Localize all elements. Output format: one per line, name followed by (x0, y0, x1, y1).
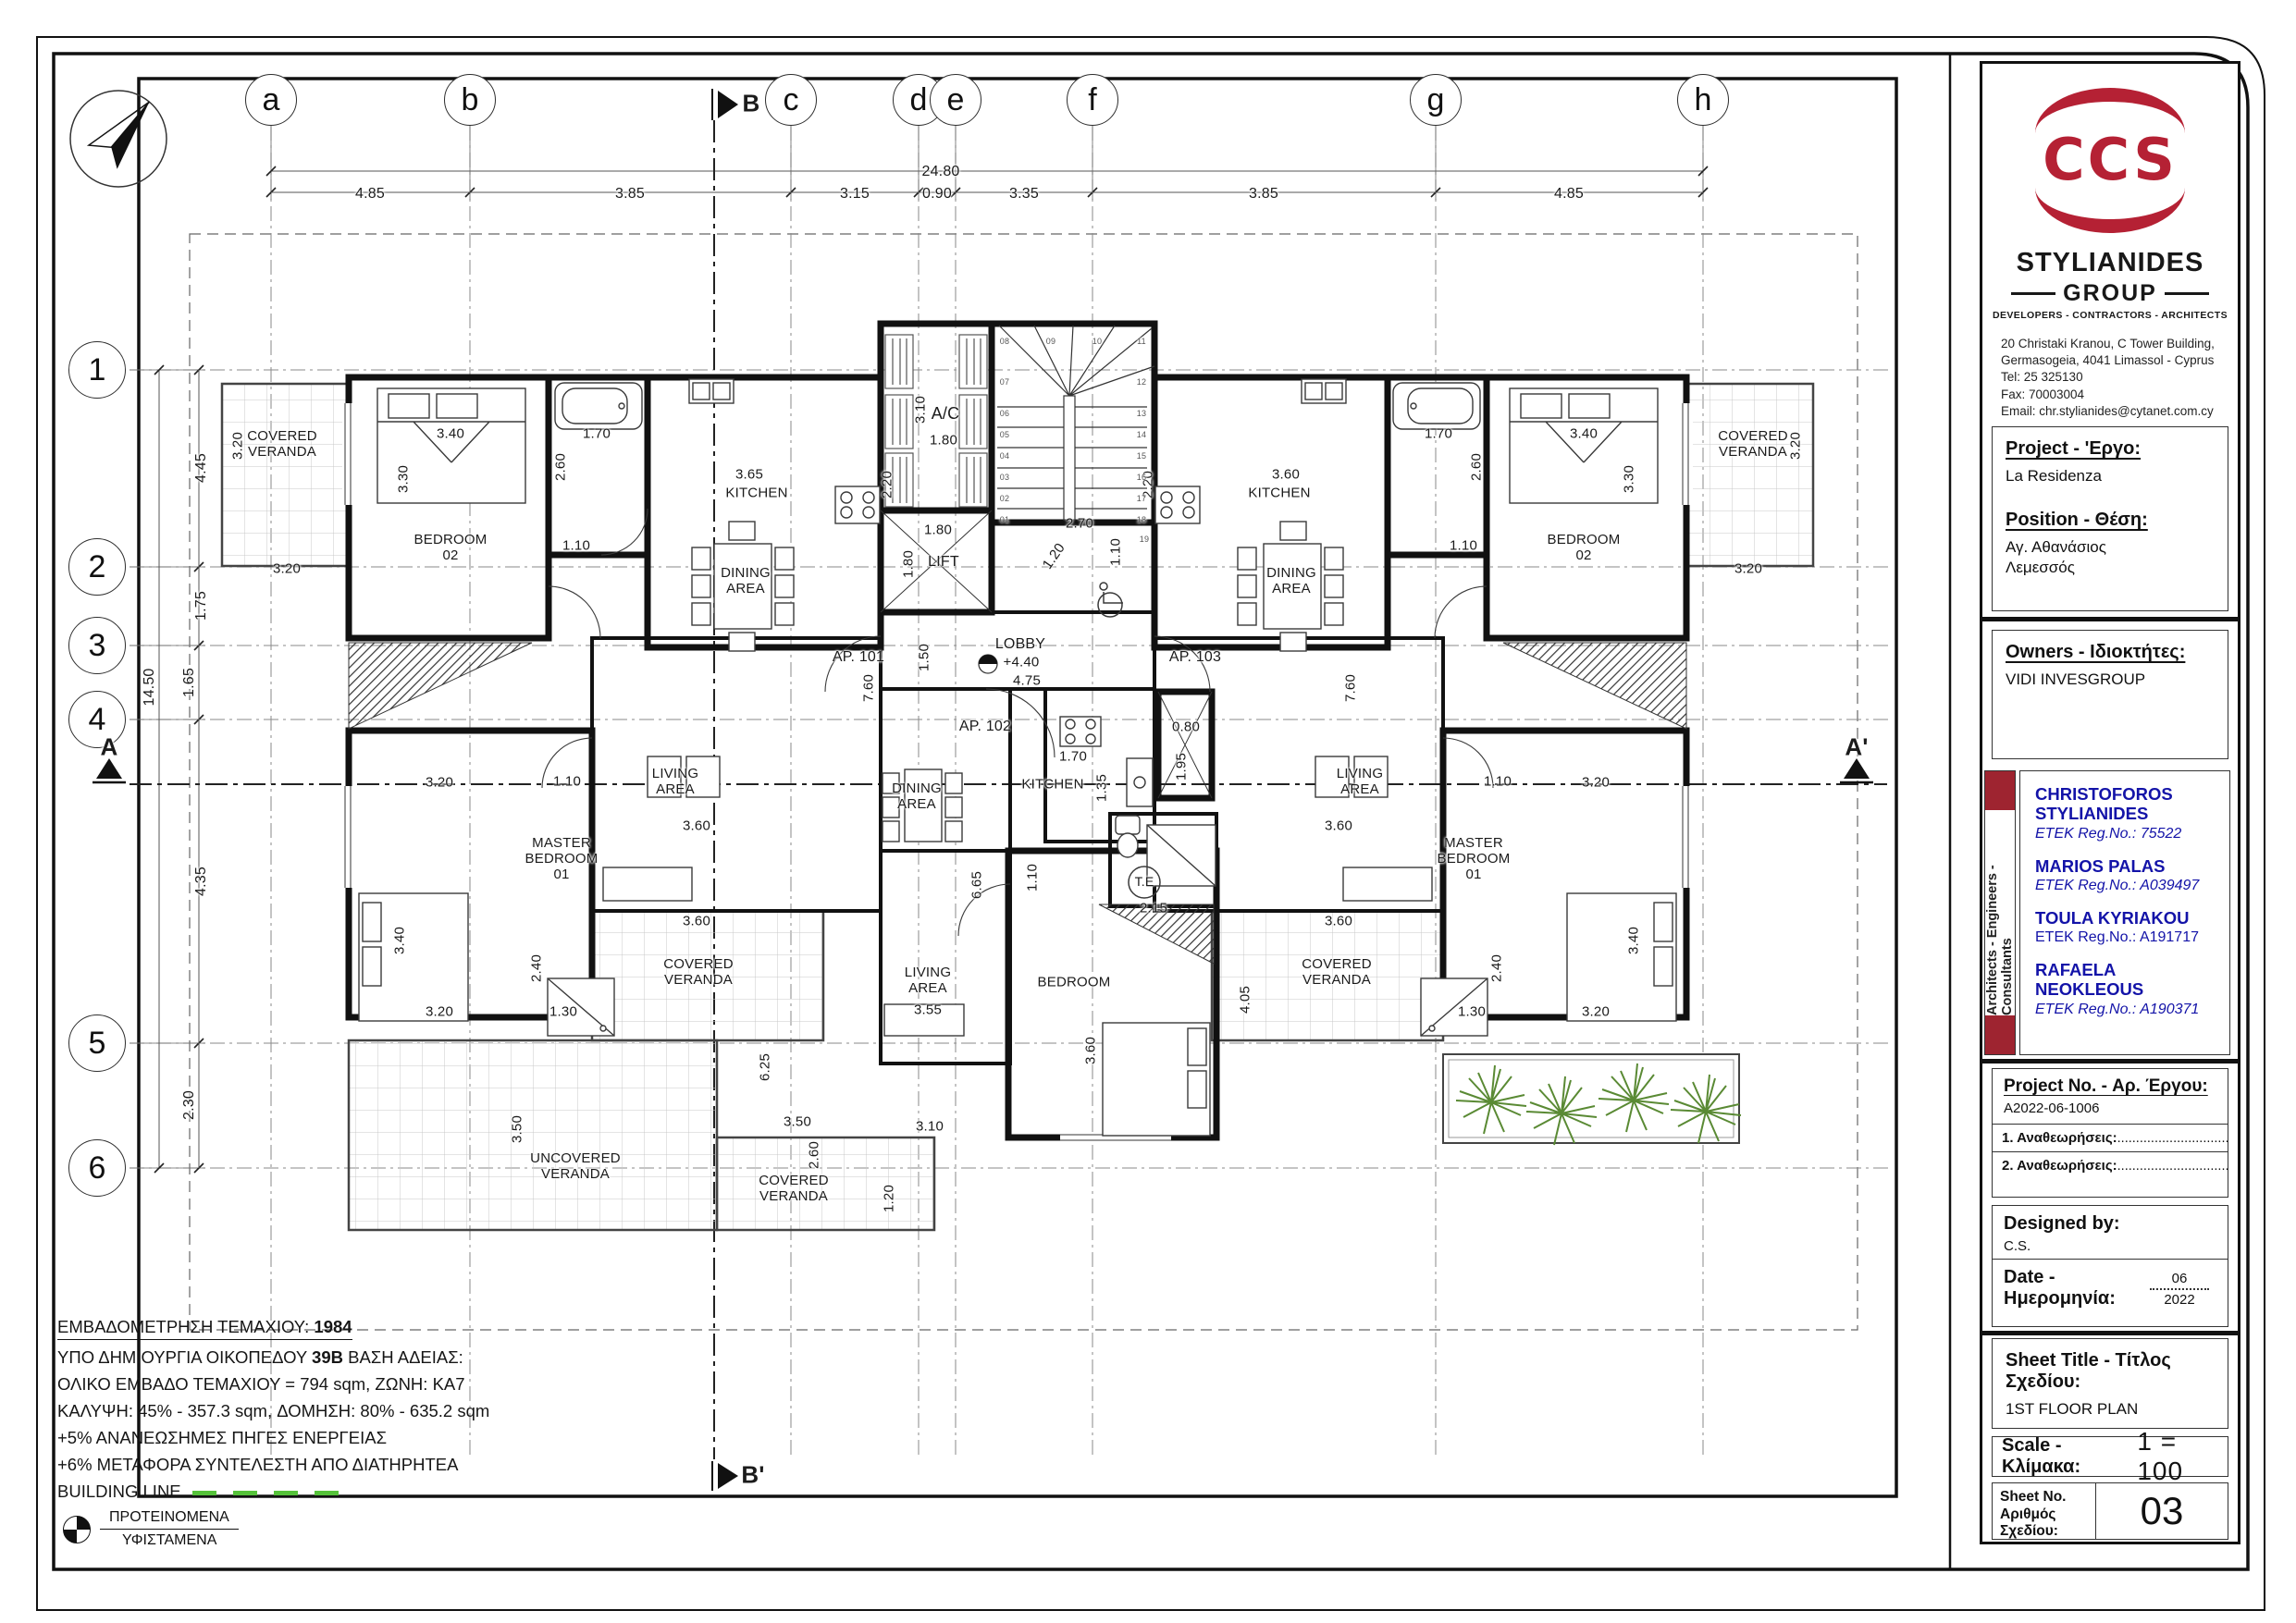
company-address: 20 Christaki Kranou, C Tower Building,Ge… (2001, 336, 2219, 420)
project-no-box: Project No. - Αρ. Έργου: A2022-06-1006 1… (1992, 1068, 2228, 1198)
address-line: Fax: 70003004 (2001, 387, 2219, 403)
sheet-no-value: 03 (2096, 1483, 2228, 1539)
owners-label: Owners - Ιδιοκτήτες: (2006, 642, 2215, 663)
team-member-name: MARIOS PALAS (2035, 856, 2224, 876)
title-block: CCS STYLIANIDES GROUP DEVELOPERS - CONTR… (1980, 61, 2240, 1544)
building-line-symbol (192, 1491, 350, 1495)
section-marker-b-bottom (712, 1461, 738, 1491)
legend: ΠΡΟΤΕΙΝΟΜΕΝΑ ΥΦΙΣΤΑΜΕΝΑ (63, 1509, 239, 1549)
designed-label: Designed by: (2004, 1213, 2216, 1235)
divider (1982, 617, 2238, 621)
team-section: Architects - Engineers - Consultants CHR… (1982, 770, 2238, 1055)
position-value: Αγ. Αθανάσιος (2006, 538, 2215, 557)
revision-row-2: 2. Αναθεωρήσεις:........................… (1993, 1151, 2228, 1179)
site-notes: ΕΜΒΑΔΟΜΕΤΡΗΣΗ ΤΕΜΑΧΙΟΥ: 1984 ΥΠΟ ΔΗΜΙΟΥΡ… (57, 1319, 501, 1510)
ac-units (885, 335, 987, 507)
team-member-name: CHRISTOFOROS STYLIANIDES (2035, 784, 2224, 824)
team-member: MARIOS PALASETEK Reg.No.: A039497 (2035, 856, 2224, 894)
sheet-title-label: Sheet Title - Τίτλος Σχεδίου: (2006, 1350, 2215, 1393)
divider (1982, 1331, 2238, 1335)
sheet-title-value: 1ST FLOOR PLAN (2006, 1400, 2215, 1419)
ccs-logo-icon: CCS (2022, 88, 2198, 233)
scale-label: Scale - Κλίμακα: (2002, 1435, 2126, 1478)
staircase (997, 326, 1154, 520)
date-label: Date - Ημερομηνία: (2004, 1267, 2150, 1309)
sidebar-red-block (1985, 771, 2015, 810)
owners-box: Owners - Ιδιοκτήτες: VIDI INVESGROUP (1992, 630, 2228, 759)
address-line: 20 Christaki Kranou, C Tower Building, (2001, 336, 2219, 352)
divider (1982, 1059, 2238, 1064)
furniture (359, 379, 1676, 1136)
north-arrow-icon (70, 90, 167, 187)
date-value: 06 2022 (2150, 1271, 2209, 1308)
team-member-reg: ETEK Reg.No.: A191717 (2035, 929, 2224, 946)
level-marker (979, 655, 997, 673)
ccs-logo-text: CCS (2022, 133, 2198, 188)
site-boundary (139, 79, 1896, 1496)
position-value2: Λεμεσσός (2006, 559, 2215, 577)
team-member-reg: ETEK Reg.No.: A190371 (2035, 1002, 2224, 1018)
drawing-sheet: abcdefgh123456 24.804.853.853.150.903.35… (0, 0, 2296, 1623)
team-member-name: TOULA KYRIAKOU (2035, 908, 2224, 928)
designed-date-box: Designed by: C.S. Date - Ημερομηνία: 06 … (1992, 1205, 2228, 1327)
sidebar-red-block (1985, 1015, 2015, 1054)
address-line: Email: chr.stylianides@cytanet.com.cy (2001, 403, 2219, 420)
sidebar-text: Architects - Engineers - Consultants (1985, 810, 2015, 1015)
sheet-no-box: Sheet No. Αριθμός Σχεδίου: 03 (1992, 1482, 2228, 1540)
note-area-line: ΕΜΒΑΔΟΜΕΤΡΗΣΗ ΤΕΜΑΧΙΟΥ: 1984 (57, 1319, 352, 1340)
windows (342, 403, 1693, 1145)
company-name: STYLIANIDES (1982, 248, 2238, 278)
revision-row-1: 1. Αναθεωρήσεις:........................… (1993, 1124, 2228, 1151)
project-no-label: Project No. - Αρ. Έργου: (1993, 1069, 2228, 1099)
team-member: CHRISTOFOROS STYLIANIDESETEK Reg.No.: 75… (2035, 784, 2224, 842)
team-list: CHRISTOFOROS STYLIANIDESETEK Reg.No.: 75… (2019, 770, 2230, 1055)
legend-existing: ΥΦΙΣΤΑΜΕΝΑ (100, 1530, 239, 1549)
team-member-name: RAFAELA NEOKLEOUS (2035, 960, 2224, 1000)
project-no-value: A2022-06-1006 (1993, 1099, 2228, 1124)
project-box: Project - 'Εργο: La Residenza Position -… (1992, 426, 2228, 611)
project-label: Project - 'Εργο: (2006, 438, 2215, 460)
address-line: Tel: 25 325130 (2001, 369, 2219, 386)
position-label: Position - Θέση: (2006, 510, 2215, 531)
team-sidebar: Architects - Engineers - Consultants (1984, 770, 2016, 1055)
legend-proposed: ΠΡΟΤΕΙΝΟΜΕΝΑ (100, 1509, 239, 1530)
hatched-walls (349, 643, 1686, 964)
team-member-reg: ETEK Reg.No.: 75522 (2035, 826, 2224, 842)
company-header: CCS STYLIANIDES GROUP DEVELOPERS - CONTR… (1982, 64, 2238, 419)
designed-value: C.S. (2004, 1238, 2216, 1254)
team-member: RAFAELA NEOKLEOUSETEK Reg.No.: A190371 (2035, 960, 2224, 1018)
sheet-title-box: Sheet Title - Τίτλος Σχεδίου: 1ST FLOOR … (1992, 1338, 2228, 1429)
address-line: Germasogeia, 4041 Limassol - Cyprus (2001, 352, 2219, 369)
section-marker-b-top (712, 89, 738, 120)
planter (1443, 1054, 1741, 1145)
company-tagline: DEVELOPERS - CONTRACTORS - ARCHITECTS (1982, 310, 2238, 321)
benchmark-icon (63, 1516, 91, 1543)
team-member: TOULA KYRIAKOUETEK Reg.No.: A191717 (2035, 908, 2224, 946)
scale-value: 1 = 100 (2137, 1427, 2218, 1486)
team-member-reg: ETEK Reg.No.: A039497 (2035, 878, 2224, 894)
section-marker-a-left (93, 758, 126, 782)
company-group: GROUP (2063, 280, 2157, 307)
sheet-no-label: Sheet No. Αριθμός Σχεδίου: (1993, 1483, 2096, 1539)
scale-box: Scale - Κλίμακα: 1 = 100 (1992, 1436, 2228, 1477)
owners-value: VIDI INVESGROUP (2006, 670, 2215, 689)
project-value: La Residenza (2006, 467, 2215, 486)
section-marker-a-right (1840, 758, 1873, 782)
